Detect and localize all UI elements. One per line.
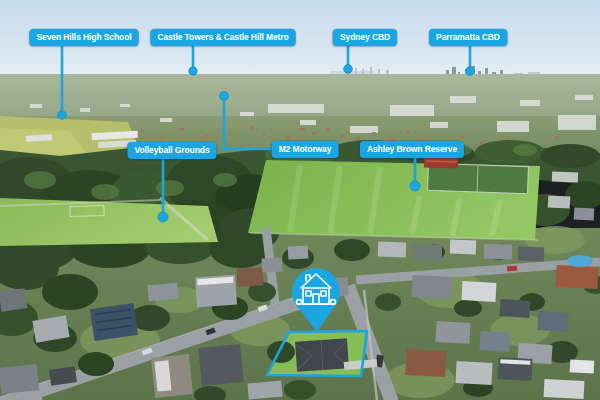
callout-label-parramatta-cbd: Parramatta CBD [429, 29, 507, 46]
driveway [344, 363, 377, 366]
callout-label-ashley-brown-reserve: Ashley Brown Reserve [360, 141, 464, 158]
callout-label-sydney-cbd: Sydney CBD [333, 29, 397, 46]
callout-label-volleyball-grounds: Volleyball Grounds [127, 142, 216, 159]
subject-house-roof [295, 338, 349, 372]
callout-label-seven-hills-high-school: Seven Hills High School [30, 29, 139, 46]
volleyball-field [0, 198, 218, 246]
scene-graphics [0, 0, 600, 400]
aerial-photo: Seven Hills High School Castle Towers & … [0, 0, 600, 400]
callout-label-m2-motorway: M2 Motorway [272, 141, 339, 158]
callout-label-castle-towers-castle-hill-metro: Castle Towers & Castle Hill Metro [150, 29, 295, 46]
swimming-pool [567, 255, 593, 267]
reserve-field [248, 155, 540, 240]
